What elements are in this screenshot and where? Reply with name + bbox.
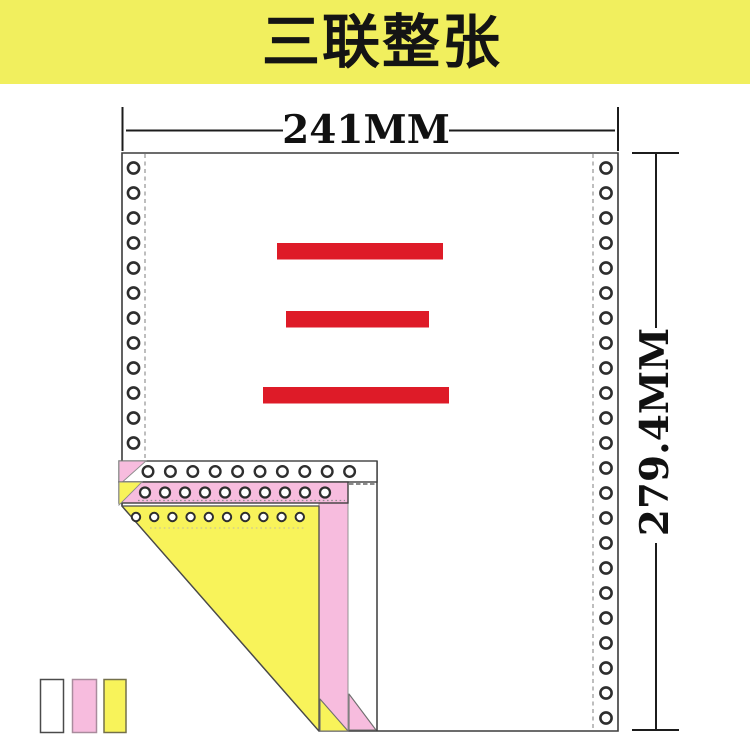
tractor-hole [128,162,139,173]
tractor-hole [260,488,270,498]
tractor-hole [223,513,231,521]
tractor-hole [241,513,249,521]
tractor-hole [600,337,611,348]
tractor-hole [600,637,611,648]
tractor-hole [600,287,611,298]
tractor-hole [165,466,176,477]
width-dimension-label: 241MM [282,107,450,153]
tractor-hole [168,513,176,521]
tractor-hole [205,513,213,521]
paper-sheet [122,153,618,731]
tractor-hole [600,487,611,498]
tractor-hole [240,488,250,498]
tractor-hole [600,187,611,198]
tractor-hole [232,466,243,477]
tractor-hole [128,312,139,323]
folded-corner [119,461,377,731]
tractor-hole [600,562,611,573]
tractor-hole [600,362,611,373]
tractor-hole [300,488,310,498]
tractor-hole [128,187,139,198]
height-dimension-label: 279.4MM [632,328,678,536]
tractor-hole [259,513,267,521]
tractor-hole [600,237,611,248]
white-ply-folded-strip [119,461,377,482]
tractor-hole [600,412,611,423]
tractor-hole [600,212,611,223]
tractor-hole [600,437,611,448]
tractor-hole [140,488,150,498]
tractor-hole [344,466,355,477]
yellow-ply-triangle [122,506,319,731]
yellow-ply-swatch [104,680,126,733]
tractor-hole [128,212,139,223]
tractor-hole [128,287,139,298]
tractor-hole [600,587,611,598]
tractor-hole [128,387,139,398]
red-bar-top [277,243,443,260]
product-diagram: 三联整张 241MM 279.4MM [0,0,750,750]
tractor-hole [600,387,611,398]
tractor-hole [600,612,611,623]
tractor-hole [220,488,230,498]
tractor-hole [600,512,611,523]
pink-ply-folded-strip [119,482,348,503]
tractor-hole [143,466,154,477]
tractor-hole [188,466,199,477]
tractor-hole [600,662,611,673]
tractor-hole [296,513,304,521]
tractor-hole [277,513,285,521]
tractor-hole [160,488,170,498]
tractor-hole [600,687,611,698]
red-bar-bottom [263,387,449,404]
tractor-hole [322,466,333,477]
pink-ply-swatch [73,680,97,733]
tractor-hole [180,488,190,498]
tractor-hole [128,437,139,448]
tractor-hole [200,488,210,498]
tractor-hole [300,466,311,477]
tractor-hole [255,466,266,477]
ply-swatches [41,680,127,733]
tractor-hole [600,262,611,273]
banner-title: 三联整张 [262,8,502,76]
tractor-hole [320,488,330,498]
width-dimension: 241MM [123,107,619,153]
tractor-hole [600,537,611,548]
red-bar-middle [286,311,429,328]
tractor-hole [128,237,139,248]
tractor-hole [128,337,139,348]
right-tractor-holes [600,162,611,723]
tractor-hole [600,712,611,723]
product-image: 三联整张 241MM 279.4MM [0,0,750,750]
tractor-hole [186,513,194,521]
tractor-hole [210,466,221,477]
tractor-hole [277,466,288,477]
tractor-hole [128,362,139,373]
height-dimension: 279.4MM [632,153,679,730]
tractor-hole [600,462,611,473]
tractor-hole [600,162,611,173]
tractor-hole [280,488,290,498]
tractor-hole [132,513,140,521]
white-ply-swatch [41,680,64,733]
pink-ply-band [319,503,348,731]
tractor-hole [128,262,139,273]
tractor-hole [150,513,158,521]
tractor-hole [600,312,611,323]
tractor-hole [128,412,139,423]
